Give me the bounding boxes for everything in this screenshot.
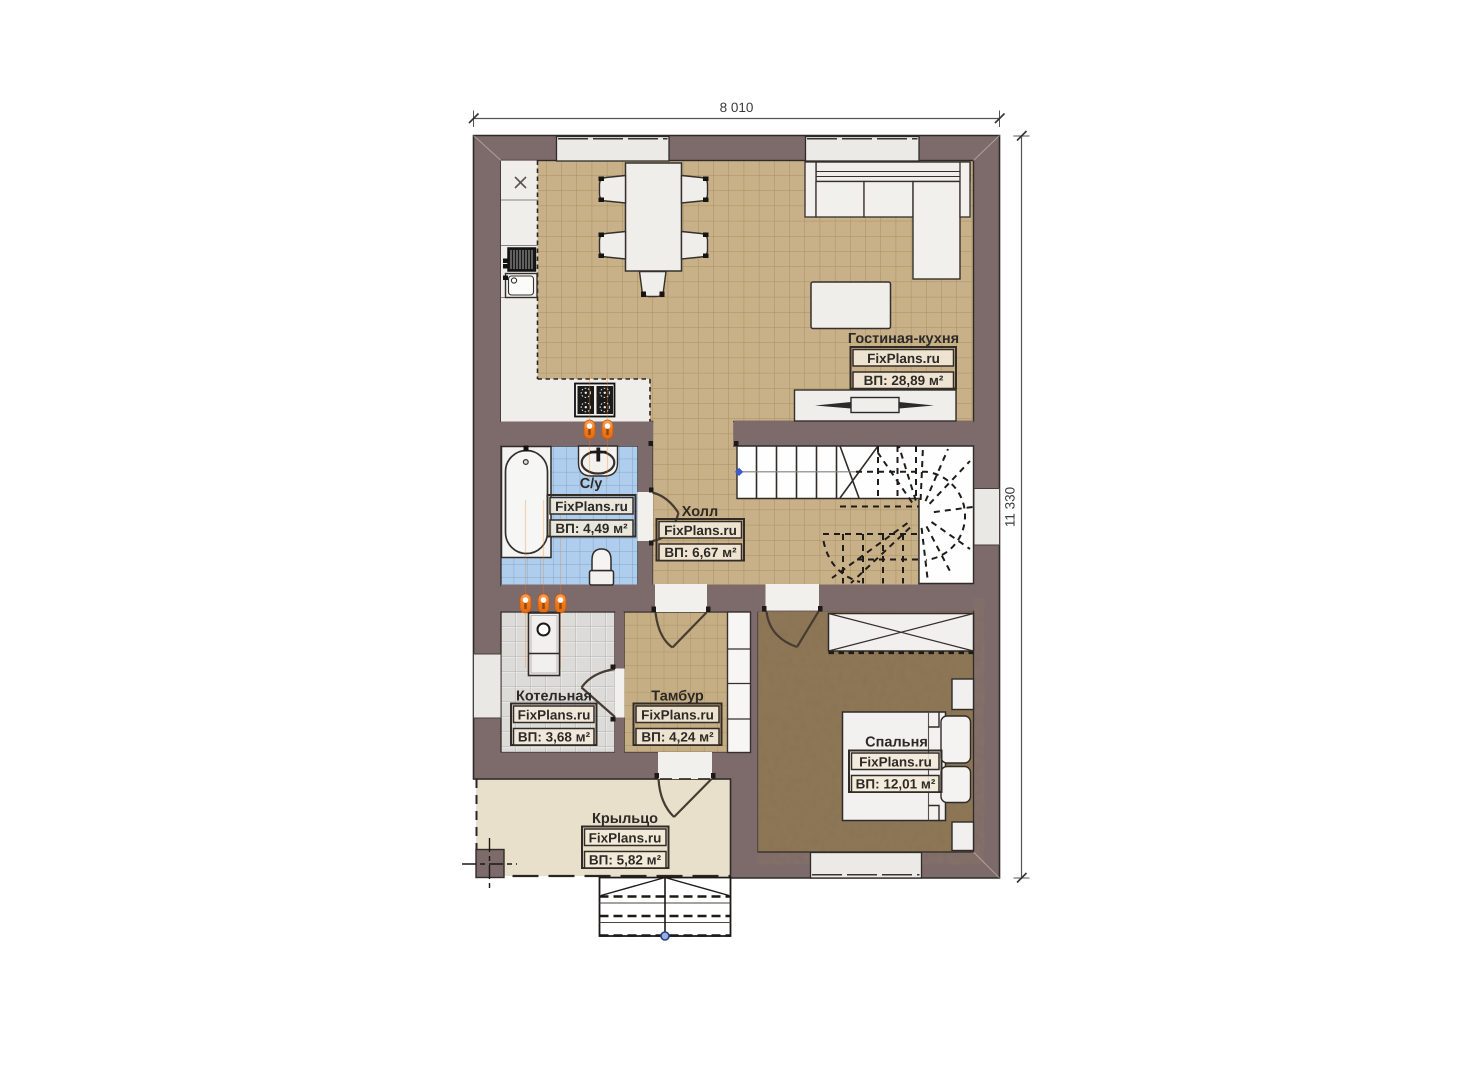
- svg-text:FixPlans.ru: FixPlans.ru: [641, 708, 714, 723]
- svg-text:FixPlans.ru: FixPlans.ru: [555, 499, 628, 514]
- svg-text:FixPlans.ru: FixPlans.ru: [867, 351, 940, 366]
- svg-text:ВП: 6,67 м²: ВП: 6,67 м²: [664, 545, 737, 560]
- svg-text:ВП: 5,82 м²: ВП: 5,82 м²: [589, 853, 662, 868]
- svg-text:Гостиная-кухня: Гостиная-кухня: [848, 331, 959, 347]
- svg-text:Спальня: Спальня: [865, 735, 928, 751]
- svg-text:ВП: 12,01 м²: ВП: 12,01 м²: [856, 777, 936, 792]
- svg-text:FixPlans.ru: FixPlans.ru: [518, 708, 591, 723]
- svg-text:ВП: 3,68 м²: ВП: 3,68 м²: [518, 730, 591, 745]
- svg-text:Крыльцо: Крыльцо: [592, 811, 658, 827]
- svg-text:С/у: С/у: [580, 476, 603, 492]
- svg-text:8 010: 8 010: [720, 100, 754, 115]
- svg-text:FixPlans.ru: FixPlans.ru: [859, 755, 932, 770]
- svg-text:FixPlans.ru: FixPlans.ru: [664, 523, 737, 538]
- svg-text:Тамбур: Тамбур: [651, 689, 704, 705]
- svg-text:Котельная: Котельная: [516, 689, 592, 705]
- svg-text:ВП: 4,49 м²: ВП: 4,49 м²: [555, 521, 628, 536]
- svg-text:ВП: 4,24 м²: ВП: 4,24 м²: [641, 730, 714, 745]
- svg-text:11 330: 11 330: [1003, 487, 1018, 527]
- svg-text:FixPlans.ru: FixPlans.ru: [589, 831, 662, 846]
- svg-text:Холл: Холл: [682, 504, 718, 520]
- svg-text:ВП: 28,89 м²: ВП: 28,89 м²: [864, 373, 944, 388]
